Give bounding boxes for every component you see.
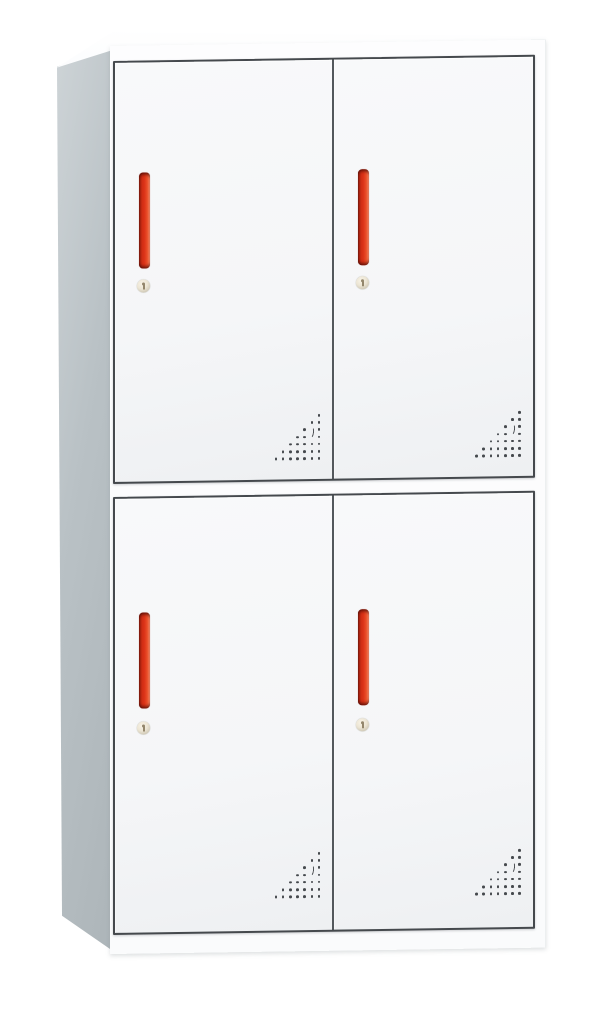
vent-dot <box>289 450 292 453</box>
vent-crescent <box>509 424 515 436</box>
vent-dot <box>518 856 521 859</box>
vent-dot <box>504 885 507 888</box>
vent-dot <box>303 881 306 884</box>
vent-dot <box>518 870 521 873</box>
vent-dot <box>289 888 292 891</box>
vent-dot <box>282 888 285 891</box>
vent-dot <box>497 885 500 888</box>
vent-dot <box>482 893 485 896</box>
locker-lower-row <box>113 491 535 935</box>
vent-dot <box>296 888 299 891</box>
vent-dot <box>475 893 478 896</box>
vent-dot <box>518 432 521 435</box>
vent-dot <box>504 426 507 429</box>
vent-dot <box>318 435 321 438</box>
vent-dot <box>482 885 485 888</box>
vent-dot <box>504 447 507 450</box>
vent-dot <box>504 433 507 436</box>
vent-dot <box>518 425 521 428</box>
vent-dot <box>311 421 314 424</box>
vent-dot <box>518 849 521 852</box>
vent-dot <box>318 414 321 417</box>
locker-door-bottom-right <box>334 493 533 930</box>
vent-dot <box>482 455 485 458</box>
vent-dot <box>518 440 521 443</box>
vent-crescent <box>509 862 515 874</box>
vent-holes <box>468 849 521 903</box>
vent-dot <box>497 433 500 436</box>
vent-dot <box>518 885 521 888</box>
cabinet-side-panel <box>55 44 112 954</box>
keyhole-slot <box>362 723 364 728</box>
vent-dot <box>511 418 514 421</box>
vent-dot <box>275 458 278 461</box>
vent-dot <box>303 888 306 891</box>
locker-door-top-right <box>334 57 533 479</box>
vent-dot <box>289 895 292 898</box>
vent-holes <box>468 411 521 465</box>
lock-keyhole <box>137 721 150 734</box>
product-image <box>0 0 605 1009</box>
vent-dot <box>318 866 321 869</box>
door-handle <box>358 169 369 265</box>
vent-dot <box>311 859 314 862</box>
vent-dot <box>518 411 521 414</box>
vent-dot <box>318 852 321 855</box>
vent-crescent <box>308 865 314 877</box>
door-handle <box>358 609 369 705</box>
vent-dot <box>318 457 321 460</box>
locker-door-bottom-left <box>115 496 332 933</box>
vent-dot <box>318 443 321 446</box>
vent-dot <box>518 454 521 457</box>
vent-dot <box>511 878 514 881</box>
vent-dot <box>490 447 493 450</box>
vent-dot <box>490 878 493 881</box>
vent-dot <box>303 436 306 439</box>
vent-dot <box>282 896 285 899</box>
vent-dot <box>318 859 321 862</box>
vent-dot <box>518 863 521 866</box>
vent-dot <box>482 447 485 450</box>
vent-dot <box>504 892 507 895</box>
vent-dot <box>490 455 493 458</box>
vent-dot <box>497 447 500 450</box>
vent-holes <box>267 852 320 906</box>
vent-dot <box>511 892 514 895</box>
vent-dot <box>318 421 321 424</box>
vent-dot <box>497 892 500 895</box>
vent-dot <box>504 454 507 457</box>
vent-dot <box>303 428 306 431</box>
vent-dot <box>289 443 292 446</box>
vent-dot <box>282 458 285 461</box>
vent-dot <box>318 450 321 453</box>
vent-dot <box>504 871 507 874</box>
keyhole-slot <box>362 281 364 286</box>
keyhole-slot <box>143 284 145 289</box>
vent-dot <box>490 885 493 888</box>
doors-area <box>113 55 535 935</box>
vent-dot <box>504 878 507 881</box>
lock-keyhole <box>356 718 369 731</box>
vent-dot <box>318 888 321 891</box>
vent-dot <box>303 457 306 460</box>
vent-dot <box>511 856 514 859</box>
vent-dot <box>296 895 299 898</box>
vent-dot <box>289 881 292 884</box>
vent-dot <box>318 881 321 884</box>
vent-dot <box>303 874 306 877</box>
vent-dot <box>303 895 306 898</box>
vent-dot <box>504 440 507 443</box>
vent-dot <box>311 457 314 460</box>
door-handle <box>139 172 150 268</box>
lock-keyhole <box>137 279 150 292</box>
locker-upper-row <box>113 55 535 484</box>
vent-dot <box>311 895 314 898</box>
vent-dot <box>303 450 306 453</box>
vent-dot <box>296 436 299 439</box>
vent-dot <box>518 878 521 881</box>
keyhole-slot <box>143 726 145 731</box>
vent-dot <box>318 873 321 876</box>
vent-crescent <box>308 427 314 439</box>
vent-dot <box>296 457 299 460</box>
vent-dot <box>303 443 306 446</box>
vent-dot <box>296 443 299 446</box>
vent-dot <box>318 895 321 898</box>
vent-dot <box>275 896 278 899</box>
vent-dot <box>311 888 314 891</box>
vent-dot <box>296 450 299 453</box>
vent-dot <box>490 893 493 896</box>
vent-dot <box>311 450 314 453</box>
vent-dot <box>296 881 299 884</box>
vent-dot <box>511 440 514 443</box>
vent-dot <box>504 864 507 867</box>
vent-dot <box>518 447 521 450</box>
vent-dot <box>311 443 314 446</box>
vent-dot <box>511 447 514 450</box>
door-handle <box>139 612 150 708</box>
vent-dot <box>303 866 306 869</box>
vent-dot <box>518 892 521 895</box>
lock-keyhole <box>356 276 369 289</box>
vent-dot <box>511 454 514 457</box>
vent-dot <box>497 871 500 874</box>
locker-door-top-left <box>115 60 332 482</box>
vent-dot <box>296 874 299 877</box>
vent-holes <box>267 414 320 468</box>
cabinet-body <box>110 40 546 954</box>
vent-dot <box>518 418 521 421</box>
vent-dot <box>490 440 493 443</box>
vent-dot <box>475 455 478 458</box>
vent-dot <box>318 428 321 431</box>
vent-dot <box>282 450 285 453</box>
vent-dot <box>497 440 500 443</box>
vent-dot <box>497 878 500 881</box>
vent-dot <box>289 457 292 460</box>
vent-dot <box>311 881 314 884</box>
vent-dot <box>511 885 514 888</box>
vent-dot <box>497 454 500 457</box>
